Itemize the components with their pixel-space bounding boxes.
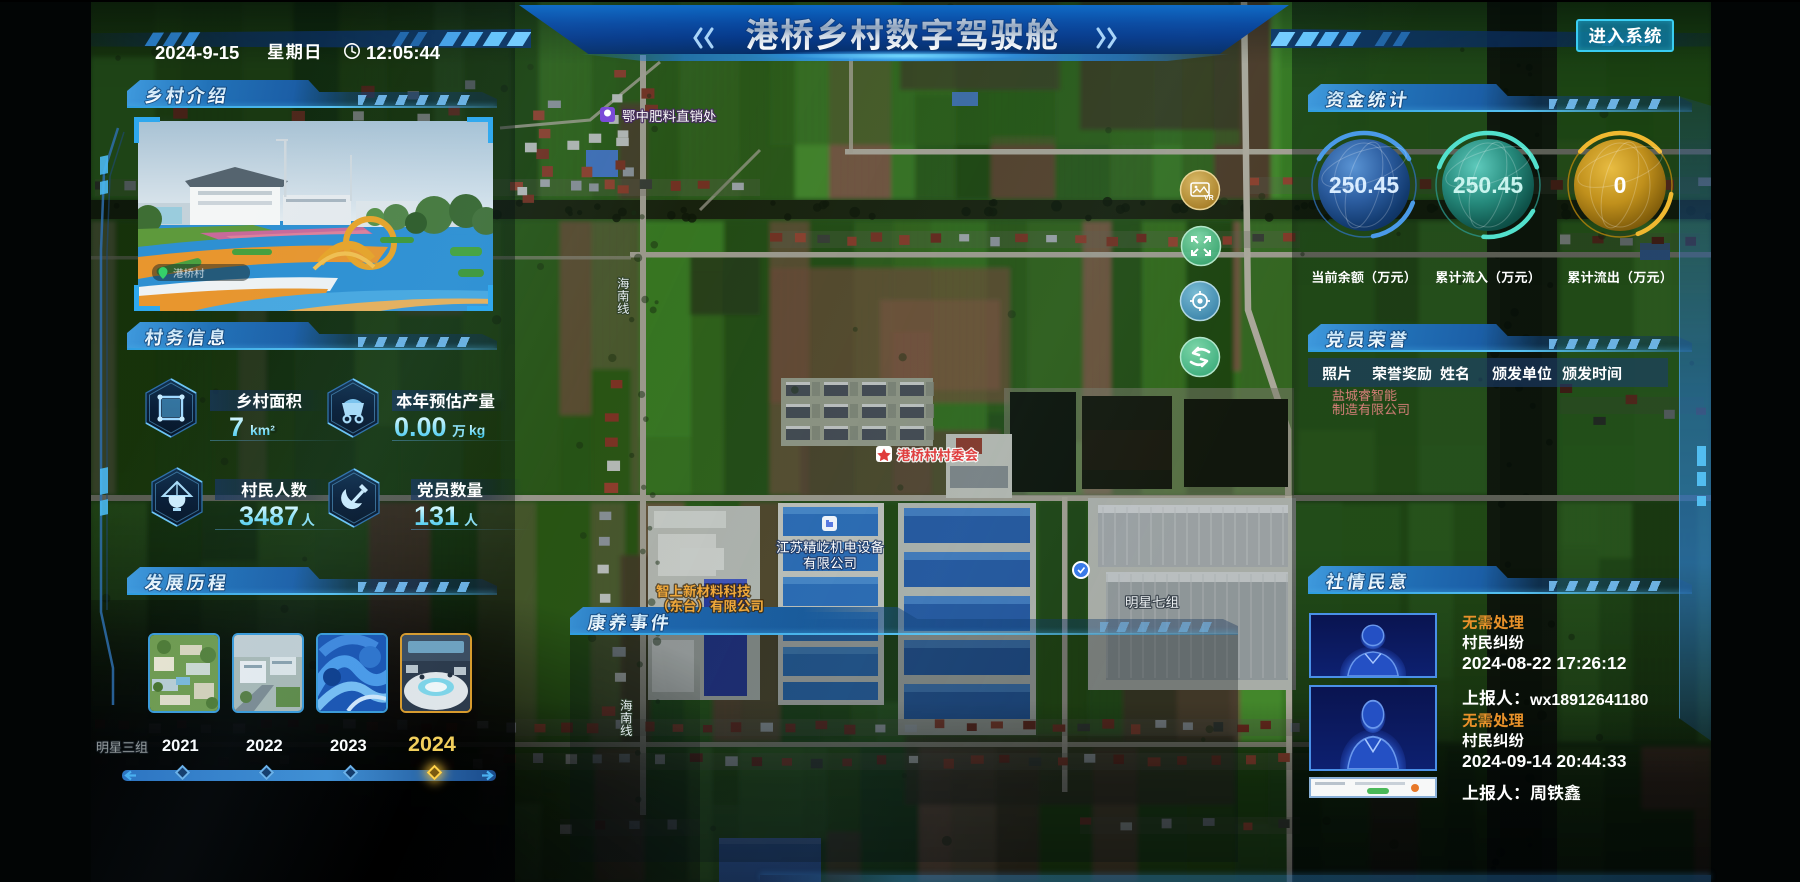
svg-text:VR: VR bbox=[1204, 195, 1214, 202]
